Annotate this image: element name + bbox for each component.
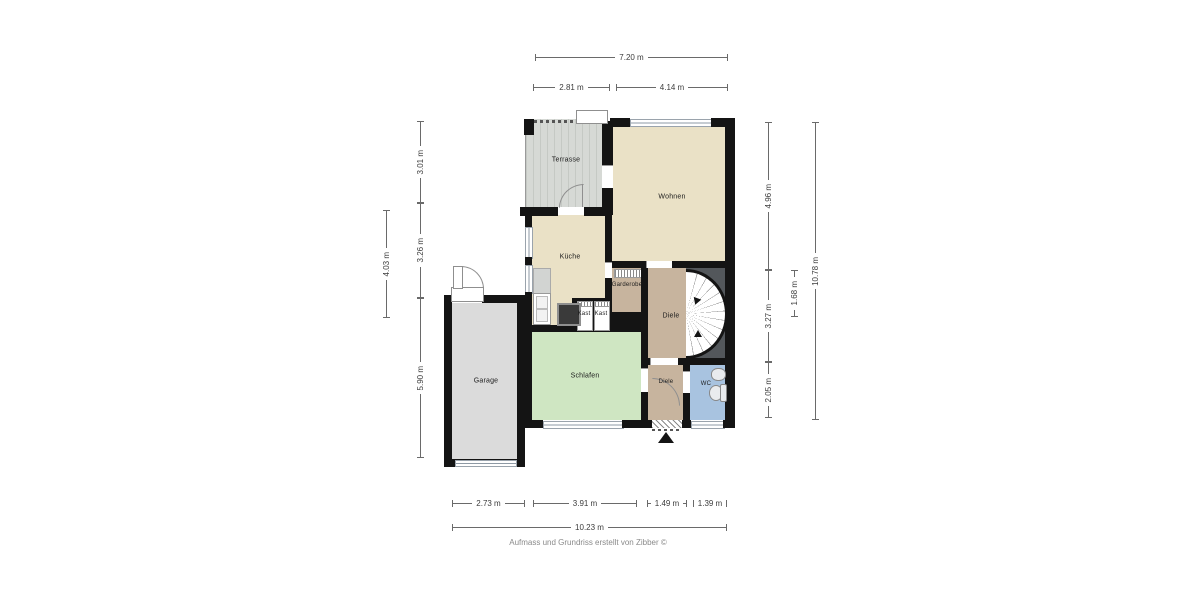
- wc-toilet-tank: [720, 384, 727, 402]
- dimension-left-outer: 4.03 m: [382, 210, 391, 318]
- window-kueche-2: [525, 265, 533, 294]
- door-arc-garage: [461, 266, 484, 289]
- wall: [605, 215, 612, 262]
- label-kast-b: Kast: [595, 311, 608, 317]
- window-kueche-1: [525, 227, 533, 259]
- dimension-left-c: 5.90 m: [416, 298, 425, 458]
- closet-door-hatch: [594, 301, 610, 307]
- wall: [683, 393, 690, 420]
- label-kast-a: Kast: [578, 311, 591, 317]
- entrance-dash: [652, 429, 682, 431]
- dimension-top-a: 2.81 m: [533, 83, 610, 92]
- dimension-bottom-total: 10.23 m: [452, 523, 727, 532]
- door-opening-wc: [683, 371, 690, 395]
- chimney: [576, 110, 608, 124]
- terrace-open-edge: [534, 120, 578, 123]
- dimension-bottom-d: 1.39 m: [693, 499, 727, 508]
- label-kueche: Küche: [560, 254, 581, 261]
- wall: [444, 295, 452, 467]
- wall: [525, 302, 532, 428]
- dimension-right-mid: 1.68 m: [790, 270, 799, 317]
- footer-credit: Aufmass und Grundriss erstellt von Zibbe…: [509, 538, 667, 547]
- wall: [610, 118, 630, 127]
- window-schlafen: [543, 421, 624, 429]
- label-diele: Diele: [663, 313, 680, 320]
- wall: [482, 295, 525, 303]
- wall: [723, 420, 735, 428]
- wall: [525, 420, 543, 428]
- wc-sink: [711, 368, 726, 381]
- sink-basin: [536, 309, 548, 322]
- label-garage: Garage: [474, 378, 499, 385]
- wall: [525, 257, 532, 265]
- wall: [622, 420, 652, 428]
- wall: [672, 261, 725, 268]
- dimension-right-c: 2.05 m: [764, 362, 773, 418]
- wall: [524, 119, 534, 135]
- dimension-top-b: 4.14 m: [616, 83, 728, 92]
- wall: [517, 295, 525, 467]
- entrance-door: [652, 420, 682, 428]
- wall: [525, 207, 532, 227]
- dimension-bottom-a: 2.73 m: [452, 499, 525, 508]
- wall: [641, 358, 650, 365]
- wall: [641, 392, 648, 420]
- label-schlafen: Schlafen: [571, 373, 600, 380]
- door-leaf: [582, 184, 583, 207]
- window-wc: [691, 421, 725, 429]
- garderobe-front-hatch: [614, 269, 642, 278]
- door-opening-schlafen: [641, 368, 648, 394]
- label-wohnen: Wohnen: [658, 194, 685, 201]
- door-opening-wohnen: [602, 165, 613, 190]
- garage-door-threshold: [451, 287, 484, 302]
- passage-diele: [650, 358, 680, 365]
- dimension-bottom-b: 3.91 m: [533, 499, 637, 508]
- dimension-left-a: 3.01 m: [416, 121, 425, 203]
- dimension-top-total: 7.20 m: [535, 53, 728, 62]
- wall: [682, 420, 691, 428]
- dimension-right-b: 3.27 m: [764, 270, 773, 362]
- label-wc: WC: [701, 381, 711, 387]
- dimension-bottom-c: 1.49 m: [647, 499, 687, 508]
- dimension-left-b: 3.26 m: [416, 203, 425, 298]
- wall: [678, 358, 735, 365]
- wall: [525, 292, 532, 302]
- wall: [602, 121, 613, 165]
- sink-basin: [536, 296, 548, 309]
- dimension-right-total: 10.78 m: [811, 122, 820, 420]
- kitchen-counter: [533, 268, 551, 295]
- passage-wohnen-diele: [646, 261, 674, 268]
- label-diele2: Diele: [659, 379, 674, 385]
- garage-door-bottom: [455, 460, 517, 467]
- label-terrasse: Terrasse: [552, 157, 580, 164]
- label-garderobe: Garderobe: [612, 282, 643, 288]
- floorplan-canvas: Terrasse Wohnen Küche Garderobe Kast Kas…: [0, 0, 1200, 600]
- entrance-arrow: [658, 432, 674, 443]
- dimension-right-a: 4.96 m: [764, 122, 773, 270]
- window-wohnen: [630, 119, 713, 127]
- stair-direction-arrow: [694, 330, 702, 337]
- wall: [612, 261, 646, 268]
- terrace-left-edge: [525, 135, 526, 207]
- wall: [725, 118, 735, 428]
